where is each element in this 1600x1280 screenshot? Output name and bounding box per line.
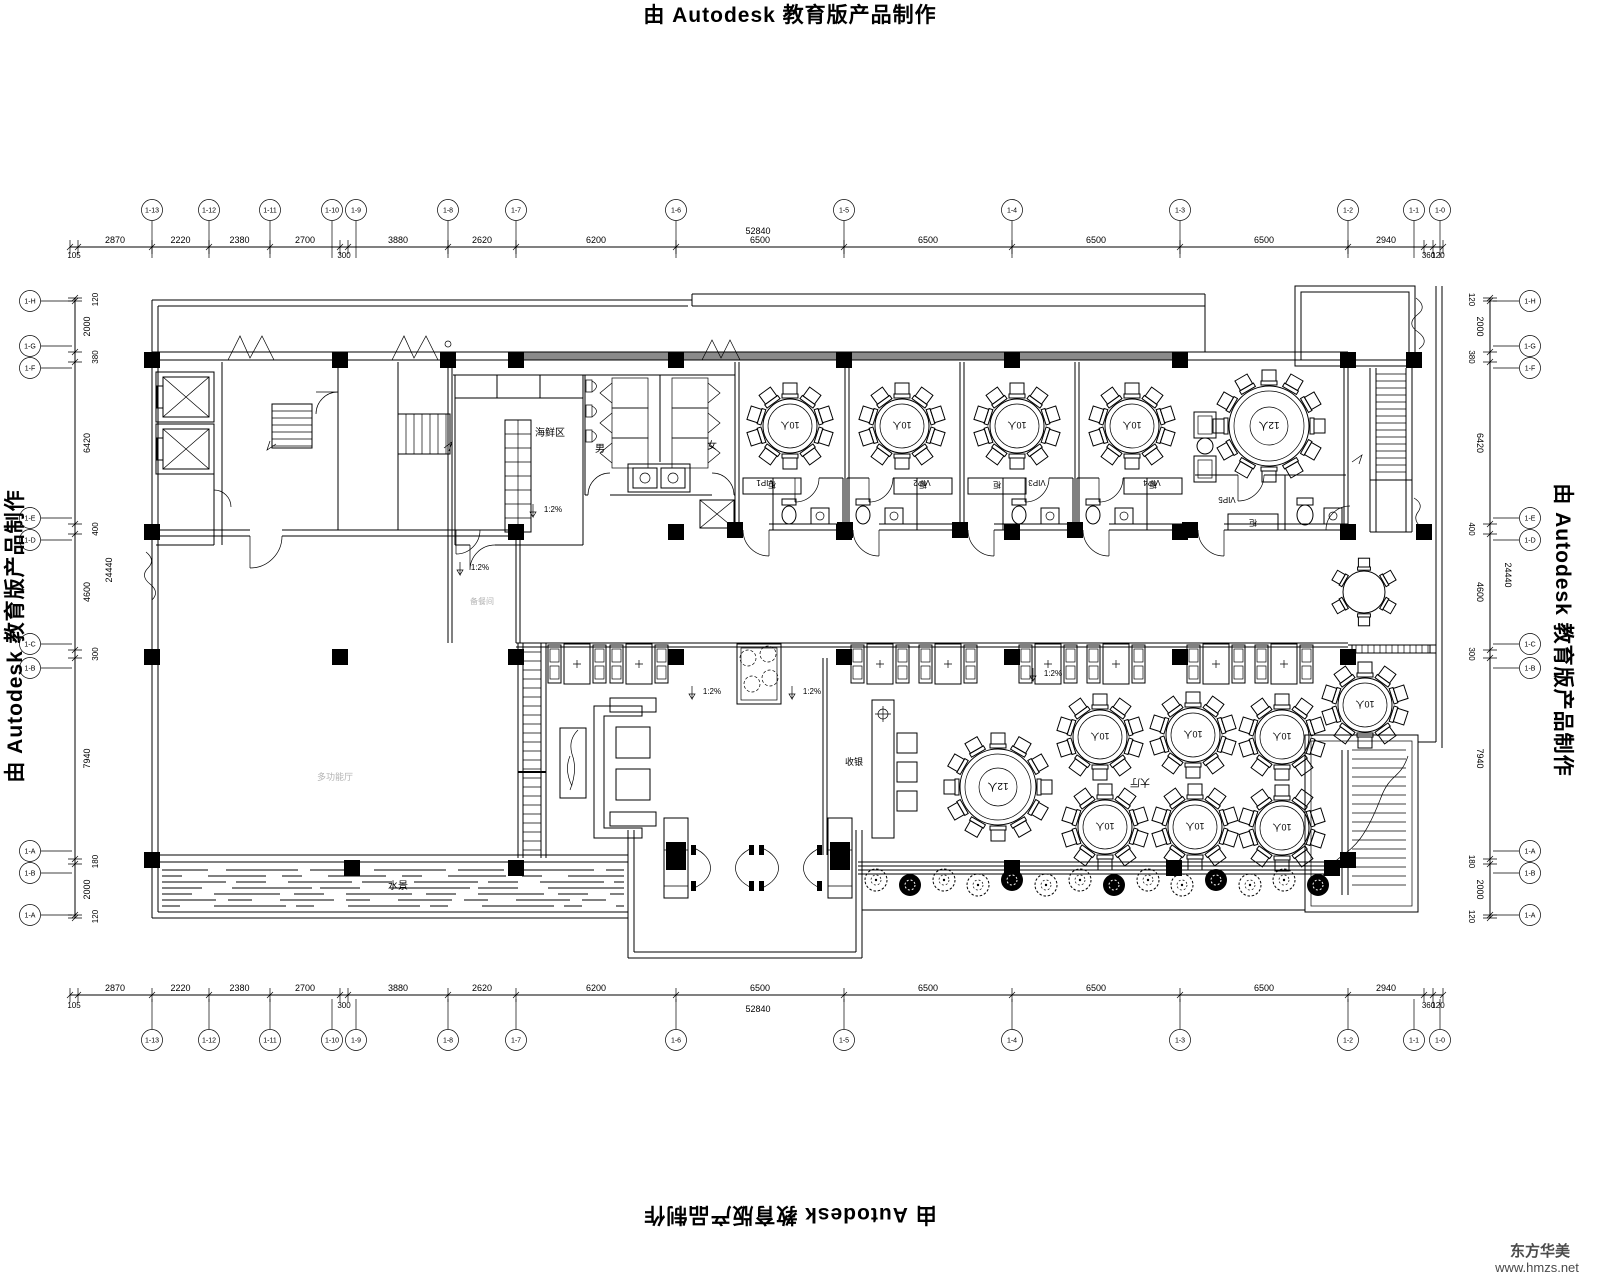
tree-solid xyxy=(899,874,921,896)
basin xyxy=(661,468,685,488)
dim-value: 180 xyxy=(1467,855,1476,869)
axis-label: 1-H xyxy=(24,299,35,306)
table-capacity-label: 10人 xyxy=(892,420,911,430)
chair xyxy=(1292,846,1314,868)
dim-value: 300 xyxy=(91,647,100,661)
booth-cluster xyxy=(851,644,909,684)
booth-cluster xyxy=(610,644,668,684)
table-centerpiece xyxy=(1212,660,1220,668)
dim-value: 7940 xyxy=(1475,748,1485,768)
chair xyxy=(870,444,892,466)
column xyxy=(1166,860,1182,876)
dim-value: 6500 xyxy=(918,235,938,245)
column xyxy=(508,649,524,665)
chair xyxy=(944,779,959,795)
axis-label: 1-13 xyxy=(145,208,159,215)
table-centerpiece xyxy=(1044,660,1052,668)
chair xyxy=(894,454,910,469)
dim-value: 6500 xyxy=(1086,983,1106,993)
bath-basin xyxy=(1041,508,1059,524)
chair xyxy=(1185,692,1201,707)
dim-value: 6500 xyxy=(750,235,770,245)
axis-label: 1-4 xyxy=(1007,208,1017,215)
column xyxy=(1340,352,1356,368)
table-top xyxy=(1343,571,1385,613)
vip-door xyxy=(853,530,879,556)
chair xyxy=(947,800,968,821)
walls-pantry xyxy=(448,530,520,643)
column xyxy=(332,649,348,665)
toilet-bowl xyxy=(856,506,870,524)
stall-door xyxy=(600,383,612,403)
axis-label: 1-1 xyxy=(1409,1038,1419,1045)
dim-value: 120 xyxy=(1431,251,1445,260)
glazing-south-dining xyxy=(858,862,1340,874)
axis-label: 1-C xyxy=(24,642,35,649)
axis-label: 1-13 xyxy=(145,1038,159,1045)
vip-corridor-wall xyxy=(735,524,845,530)
chair xyxy=(1124,454,1140,469)
chair xyxy=(1092,765,1108,780)
urinal xyxy=(586,380,597,392)
toilet-bowl xyxy=(1297,505,1313,525)
round-table: 10人 xyxy=(1239,785,1326,871)
stool xyxy=(897,762,917,782)
stool xyxy=(897,791,917,811)
cashier-area xyxy=(872,700,917,838)
axis-label: 1-8 xyxy=(443,1038,453,1045)
column xyxy=(1340,649,1356,665)
walls-seafood xyxy=(453,375,735,545)
bath-basin-bowl xyxy=(890,512,898,520)
door-hall-north xyxy=(250,536,282,568)
vip-wall xyxy=(960,362,964,530)
dim-value: 2380 xyxy=(229,983,249,993)
chair xyxy=(1110,755,1132,777)
table-capacity-label: 12人 xyxy=(1258,419,1279,431)
watermark-bottom: 由 Autodesk 教育版产品制作 xyxy=(643,1203,936,1227)
chair xyxy=(1115,788,1137,810)
table-capacity-label: 10人 xyxy=(1007,420,1026,430)
wall-south-hall xyxy=(152,855,628,862)
chair xyxy=(894,383,910,398)
axis-label: 1-6 xyxy=(671,1038,681,1045)
chair xyxy=(1187,784,1203,799)
cabinet-label: 柜 xyxy=(993,480,1001,490)
vip-room-label: VIP3 xyxy=(1028,478,1046,487)
column xyxy=(508,860,524,876)
door-lobby xyxy=(316,392,338,414)
vip-bath xyxy=(847,478,917,530)
square-table xyxy=(616,769,650,800)
label-dining-hall: 大厅 xyxy=(1130,776,1150,789)
entrance-pier-core xyxy=(830,842,850,870)
entrance xyxy=(664,818,852,898)
vip-bath xyxy=(1077,478,1147,530)
axis-label: 1-10 xyxy=(325,208,339,215)
dim-value: 6500 xyxy=(750,983,770,993)
chair xyxy=(800,387,822,409)
chair xyxy=(1068,755,1090,777)
dim-value: 2940 xyxy=(1376,983,1396,993)
slope-label: 1:2% xyxy=(471,563,489,572)
booth-cluster xyxy=(1087,644,1145,684)
chair xyxy=(782,383,798,398)
round-table: 10人 xyxy=(974,383,1061,469)
elevator-shaft xyxy=(156,424,214,474)
stair-rails xyxy=(1370,368,1412,532)
vase-stand xyxy=(560,728,586,798)
axis-label: 1-D xyxy=(1524,538,1535,545)
chair xyxy=(1203,753,1225,775)
chair xyxy=(1161,753,1183,775)
corridor-planter xyxy=(737,644,781,704)
planter-inner xyxy=(741,648,777,700)
round-table: 10人 xyxy=(1150,692,1237,778)
chair xyxy=(1301,440,1322,461)
dim-value: 2000 xyxy=(1475,879,1485,899)
axis-label: 1-11 xyxy=(263,1038,277,1045)
axis-label: 1-5 xyxy=(839,1038,849,1045)
planter-box xyxy=(737,644,781,704)
column xyxy=(668,524,684,540)
chair xyxy=(1250,846,1272,868)
axis-label: 1-A xyxy=(25,913,36,920)
dim-value: 300 xyxy=(337,1001,351,1010)
dim-value: 380 xyxy=(1467,350,1476,364)
label-cashier: 收银 xyxy=(845,756,863,767)
round-table xyxy=(1332,558,1397,626)
axis-label: 1-D xyxy=(24,538,35,545)
chair xyxy=(947,753,968,774)
wall-hall-north xyxy=(152,530,516,536)
chair xyxy=(1009,383,1025,398)
axis-label: 1-A xyxy=(25,849,36,856)
toilet-tank xyxy=(1012,499,1026,505)
vip-bath xyxy=(773,478,843,530)
table-centerpiece xyxy=(573,660,581,668)
column xyxy=(508,524,524,540)
round-table: 10人 xyxy=(1239,694,1326,780)
axis-label: 1-10 xyxy=(325,1038,339,1045)
round-table: 10人 xyxy=(747,383,834,469)
chair xyxy=(1332,570,1349,587)
bath-basin xyxy=(1115,508,1133,524)
chair xyxy=(1142,387,1164,409)
elevator-shaft xyxy=(156,372,214,422)
dim-value: 2220 xyxy=(170,235,190,245)
dimension-chains: 1052870222023802700300388026206200650065… xyxy=(20,200,1541,1051)
booth-cluster xyxy=(919,644,977,684)
tree-solid xyxy=(1103,874,1125,896)
column xyxy=(1406,352,1422,368)
tree-solid xyxy=(1001,869,1023,891)
axis-label: 1-12 xyxy=(202,1038,216,1045)
vip-room-label: VIP2 xyxy=(913,478,931,487)
chair xyxy=(1217,391,1238,412)
chair xyxy=(912,387,934,409)
table-centerpiece xyxy=(635,660,643,668)
chair xyxy=(870,387,892,409)
dim-value: 3880 xyxy=(388,983,408,993)
vip-bath-door xyxy=(869,478,893,502)
chair xyxy=(1115,845,1137,867)
axis-label: 1-7 xyxy=(511,208,521,215)
wc-stall xyxy=(672,378,708,408)
axis-label: 1-3 xyxy=(1175,208,1185,215)
round-table: 10人 xyxy=(1152,784,1239,870)
chair xyxy=(1213,418,1228,434)
elevator-x xyxy=(163,377,209,417)
chair xyxy=(1205,788,1227,810)
axis-label: 1-A xyxy=(1525,913,1536,920)
chair xyxy=(1250,789,1272,811)
axis-label: 1-E xyxy=(1525,516,1536,523)
toilet-bowl xyxy=(1012,506,1026,524)
column xyxy=(668,649,684,665)
wall-vip-east xyxy=(1344,362,1348,530)
side-table xyxy=(610,698,656,712)
chair xyxy=(758,444,780,466)
entrance-door-leaves xyxy=(694,848,820,888)
brand-watermark: 东方华美 xyxy=(1510,1242,1571,1260)
dim-value: 6200 xyxy=(586,235,606,245)
dim-value: 6420 xyxy=(82,433,92,453)
stair-flight xyxy=(272,404,312,448)
wall-parapet-top xyxy=(152,294,1205,352)
chair xyxy=(1380,570,1397,587)
dim-value: 2870 xyxy=(105,983,125,993)
toilet-tank xyxy=(1297,498,1313,505)
chair xyxy=(1028,800,1049,821)
cad-floor-plan-page: 由 Autodesk 教育版产品制作 由 Autodesk 教育版产品制作 由 … xyxy=(0,0,1600,1280)
axis-label: 1-3 xyxy=(1175,1038,1185,1045)
chair xyxy=(1124,383,1140,398)
chair xyxy=(1301,391,1322,412)
bath-basin xyxy=(1324,508,1342,524)
column xyxy=(1324,860,1340,876)
chair xyxy=(990,826,1006,841)
basin xyxy=(633,468,657,488)
chair xyxy=(1037,779,1052,795)
plank-bridge xyxy=(518,643,546,858)
break-left-wall xyxy=(144,552,155,600)
axis-label: 1-7 xyxy=(511,1038,521,1045)
stall-door xyxy=(600,413,612,433)
column xyxy=(344,860,360,876)
dim-value: 6500 xyxy=(918,983,938,993)
column xyxy=(144,352,160,368)
column xyxy=(144,524,160,540)
compass-cross xyxy=(875,706,891,722)
table-capacity-label: 10人 xyxy=(780,420,799,430)
table-capacity-label: 10人 xyxy=(1095,821,1114,831)
dim-total: 52840 xyxy=(745,1004,770,1014)
dim-value: 400 xyxy=(1467,522,1476,536)
service-room xyxy=(156,474,214,545)
toilet-tank xyxy=(856,499,870,505)
axis-label: 1-8 xyxy=(443,208,453,215)
entrance-pier-core xyxy=(666,842,686,870)
axis-label: 1-11 xyxy=(263,208,277,215)
chair xyxy=(1100,387,1122,409)
tree-solid xyxy=(1205,869,1227,891)
axis-label: 1-A xyxy=(1525,849,1536,856)
watermarks: 由 Autodesk 教育版产品制作 由 Autodesk 教育版产品制作 由 … xyxy=(3,3,1579,1275)
window-hatch xyxy=(1352,645,1430,653)
watermark-right: 由 Autodesk 教育版产品制作 xyxy=(1551,483,1575,776)
urinal xyxy=(586,405,597,417)
table-capacity-label: 10人 xyxy=(1183,729,1202,739)
column xyxy=(836,352,852,368)
label-main-hall: 多功能厅 xyxy=(317,771,353,782)
label-female-wc: 女 xyxy=(707,439,717,452)
chair xyxy=(1011,736,1032,757)
chair xyxy=(1283,374,1304,395)
chair xyxy=(1110,698,1132,720)
armchair-seat xyxy=(1198,416,1212,434)
chair xyxy=(1092,694,1108,709)
dim-value: 6500 xyxy=(1254,235,1274,245)
vip-door xyxy=(1083,530,1109,556)
axis-label: 1-9 xyxy=(351,208,361,215)
wc-stall xyxy=(672,408,708,438)
table-centerpiece xyxy=(876,660,884,668)
column xyxy=(1172,352,1188,368)
round-table: 10人 xyxy=(1062,784,1149,870)
wc-stall xyxy=(612,378,648,408)
column xyxy=(332,352,348,368)
wall-terrace-east xyxy=(1348,645,1436,742)
round-table: 10人 xyxy=(1057,694,1144,780)
label-seafood: 海鲜区 xyxy=(535,426,565,439)
chair xyxy=(1274,694,1290,709)
slope-label: 1:2% xyxy=(803,687,821,696)
table-capacity-label: 10人 xyxy=(1355,699,1374,709)
dim-value: 2000 xyxy=(1475,316,1485,336)
dim-value: 2380 xyxy=(229,235,249,245)
chair xyxy=(1274,765,1290,780)
stair-northeast xyxy=(1326,368,1422,532)
chair xyxy=(1375,666,1397,688)
chair xyxy=(1380,597,1397,614)
dim-value: 300 xyxy=(1467,647,1476,661)
door-frames xyxy=(664,850,852,886)
column xyxy=(1340,524,1356,540)
column xyxy=(1004,524,1020,540)
column xyxy=(144,649,160,665)
wall-water-edge xyxy=(152,912,628,918)
dim-value: 120 xyxy=(1431,1001,1445,1010)
axis-label: 1-0 xyxy=(1435,208,1445,215)
stall-door xyxy=(708,383,720,403)
chair xyxy=(1358,614,1371,626)
round-table: 12人 xyxy=(1213,370,1325,482)
booth-cluster xyxy=(1019,644,1077,684)
floor-plan-canvas: 由 Autodesk 教育版产品制作 由 Autodesk 教育版产品制作 由 … xyxy=(0,0,1600,1280)
furniture: 10人10人10人10人12人12人10人10人10人10人10人10人10人柜… xyxy=(548,362,1408,871)
door-pantry xyxy=(456,530,480,554)
dim-value: 120 xyxy=(1467,910,1476,924)
column xyxy=(440,352,456,368)
chair xyxy=(912,444,934,466)
wall-right xyxy=(1436,286,1442,748)
chair xyxy=(1292,755,1314,777)
slope-label: 1:2% xyxy=(1044,669,1062,678)
bath-basin xyxy=(811,508,829,524)
table-capacity-label: 10人 xyxy=(1122,420,1141,430)
basin-bowl xyxy=(668,473,678,483)
dim-total: 24440 xyxy=(1503,562,1513,587)
column xyxy=(508,352,524,368)
axis-label: 1-B xyxy=(1525,871,1536,878)
chair xyxy=(1011,817,1032,838)
round-table: 12人 xyxy=(944,733,1052,841)
chair xyxy=(964,736,985,757)
table-capacity-label: 10人 xyxy=(1185,821,1204,831)
dim-value: 2700 xyxy=(295,235,315,245)
vip-corridor-wall xyxy=(1190,524,1348,530)
chair xyxy=(985,444,1007,466)
booth-cluster xyxy=(1255,644,1313,684)
bath-basin-bowl xyxy=(1046,512,1054,520)
brand-url: www.hmzs.net xyxy=(1494,1260,1579,1275)
chair xyxy=(1073,845,1095,867)
bath-basin xyxy=(885,508,903,524)
survey-point xyxy=(445,341,451,347)
axis-label: 1-E xyxy=(25,516,36,523)
dim-value: 6420 xyxy=(1475,433,1485,453)
dim-total: 52840 xyxy=(745,226,770,236)
chair xyxy=(1333,666,1355,688)
dim-value: 400 xyxy=(91,522,100,536)
axis-label: 1-2 xyxy=(1343,1038,1353,1045)
vip5-bath-wall xyxy=(1195,475,1346,530)
chair xyxy=(1310,418,1325,434)
side-table xyxy=(610,812,656,826)
chair xyxy=(1185,763,1201,778)
dim-value: 7940 xyxy=(82,748,92,768)
dim-value: 105 xyxy=(67,1001,81,1010)
column xyxy=(144,852,160,868)
axis-label: 1-5 xyxy=(839,208,849,215)
lobby-furniture xyxy=(560,698,656,838)
reception-bench xyxy=(594,706,642,838)
dim-value: 2220 xyxy=(170,983,190,993)
table-capacity-label: 12人 xyxy=(987,780,1008,792)
double-door xyxy=(392,336,438,360)
chair xyxy=(1100,444,1122,466)
axis-label: 1-B xyxy=(1525,666,1536,673)
slope-label: 1:2% xyxy=(703,687,721,696)
dim-total: 24440 xyxy=(104,557,114,582)
wc-stall xyxy=(612,408,648,438)
dim-value: 2870 xyxy=(105,235,125,245)
chair xyxy=(1261,370,1277,385)
round-table: 10人 xyxy=(1089,383,1176,469)
dim-value: 2940 xyxy=(1376,235,1396,245)
dim-value: 4600 xyxy=(1475,582,1485,602)
chair xyxy=(964,817,985,838)
chair xyxy=(1142,444,1164,466)
table-centerpiece xyxy=(1280,660,1288,668)
toilet-bowl xyxy=(782,506,796,524)
chair xyxy=(1357,662,1373,677)
dim-value: 6500 xyxy=(1254,983,1274,993)
table-centerpiece xyxy=(1112,660,1120,668)
dim-value: 300 xyxy=(337,251,351,260)
chair xyxy=(1292,789,1314,811)
